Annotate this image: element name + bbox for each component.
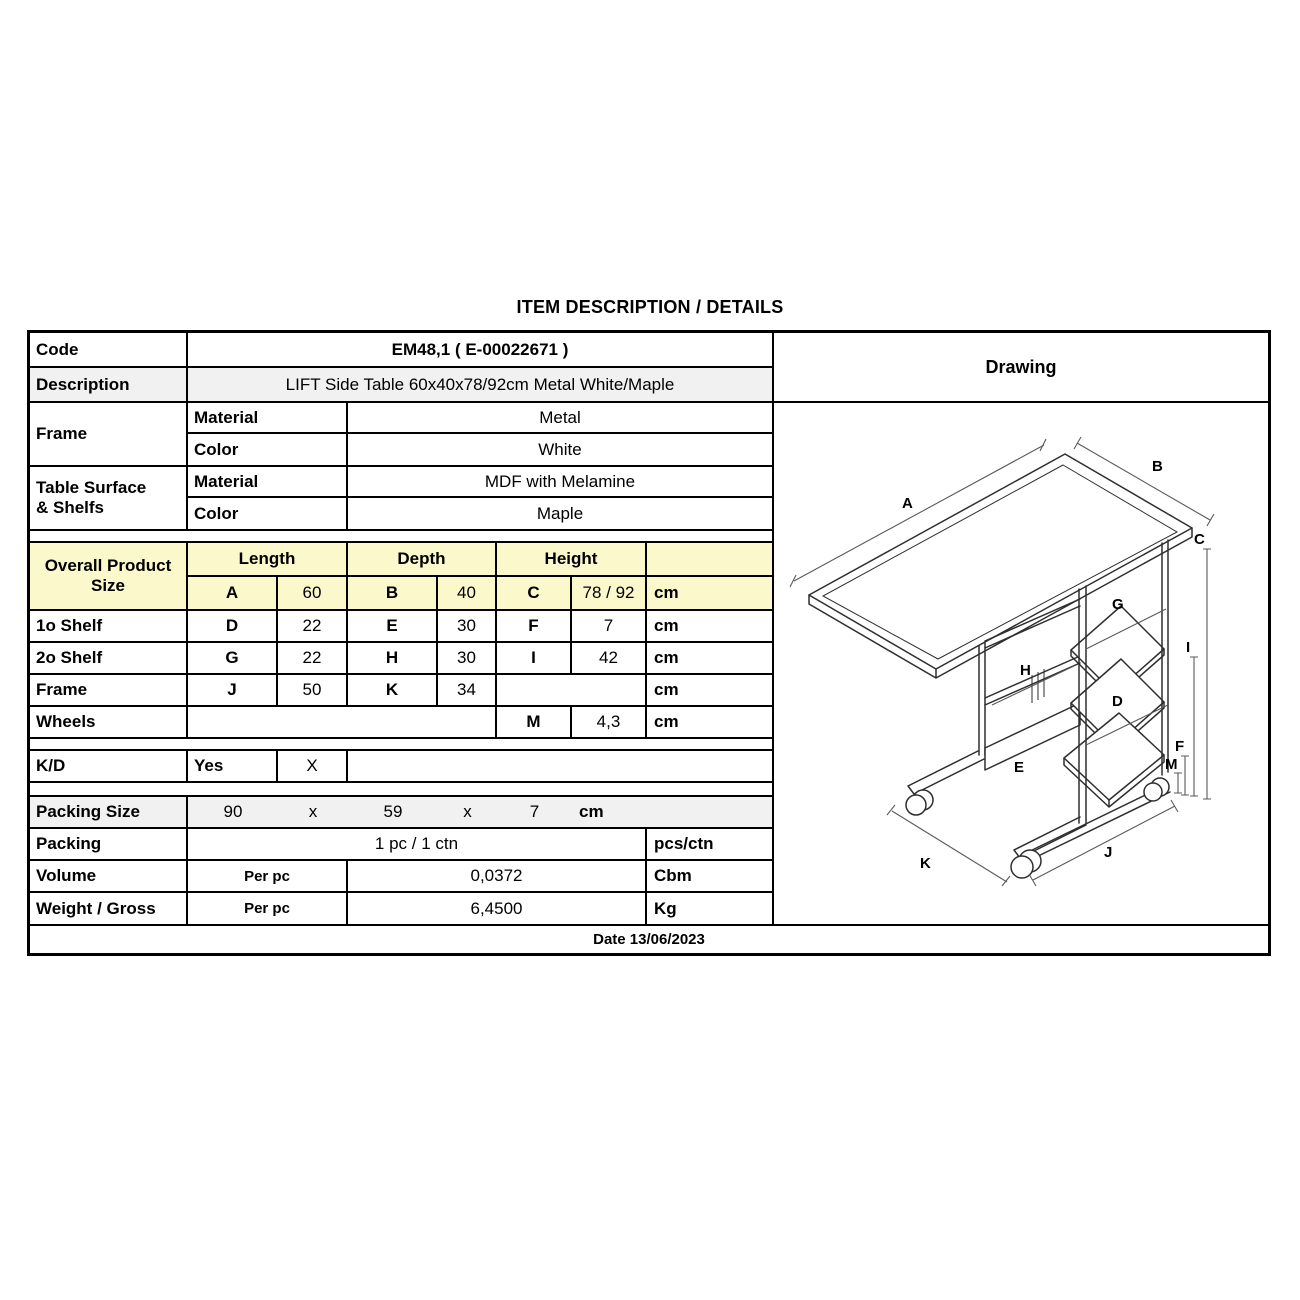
- dim-line-M: [1174, 773, 1182, 793]
- dim-line-H: [992, 666, 1074, 705]
- dim-line-I: [1190, 657, 1198, 796]
- packing-size-empty: [647, 797, 772, 827]
- packing-size-label: Packing Size: [30, 797, 188, 827]
- frame-depth-key: K: [348, 675, 438, 705]
- weight-row: Weight / Gross Per pc 6,4500 Kg: [30, 893, 772, 924]
- dim-label-C: C: [1194, 531, 1205, 548]
- packing-size-x1: x: [278, 797, 348, 827]
- packing-label: Packing: [30, 829, 188, 859]
- right-caster: [1144, 783, 1162, 801]
- volume-label: Volume: [30, 861, 188, 891]
- shelf1-unit: cm: [647, 611, 772, 641]
- shelf2-row: 2o Shelf G 22 H 30 I 42 cm: [30, 643, 772, 675]
- description-row: Description LIFT Side Table 60x40x78/92c…: [30, 368, 772, 403]
- code-row: Code EM48,1 ( E-00022671 ): [30, 333, 772, 368]
- spec-table: Code EM48,1 ( E-00022671 ) Description L…: [27, 330, 1271, 956]
- overall-length-value: 60: [278, 577, 348, 609]
- frame-length-key: J: [188, 675, 278, 705]
- shelf1-height-key: F: [497, 611, 572, 641]
- packing-row: Packing 1 pc / 1 ctn pcs/ctn: [30, 829, 772, 861]
- wheels-empty-cell: [188, 707, 497, 737]
- volume-unit: Cbm: [647, 861, 772, 891]
- surface-material-label: Material: [188, 467, 348, 496]
- spec-table-left: Code EM48,1 ( E-00022671 ) Description L…: [30, 333, 772, 924]
- frame-section: Frame Material Metal Color White: [30, 403, 772, 467]
- surface-label-line1: Table Surface: [36, 478, 146, 498]
- date-value: Date 13/06/2023: [593, 931, 705, 948]
- size-section: Overall Product Size Length Depth Height…: [30, 543, 772, 611]
- overall-depth-value: 40: [438, 577, 497, 609]
- shelf1-row: 1o Shelf D 22 E 30 F 7 cm: [30, 611, 772, 643]
- volume-per-pc: Per pc: [188, 861, 348, 891]
- spacer-row: [30, 739, 772, 751]
- dim-label-K: K: [920, 855, 931, 872]
- kd-label: K/D: [30, 751, 188, 781]
- date-row: Date 13/06/2023: [30, 926, 1268, 953]
- spacer-row: [30, 783, 772, 797]
- surface-color-value: Maple: [348, 498, 772, 529]
- shelf2-length-key: G: [188, 643, 278, 673]
- weight-label: Weight / Gross: [30, 893, 188, 924]
- weight-value: 6,4500: [348, 893, 647, 924]
- wheels-unit: cm: [647, 707, 772, 737]
- overall-depth-key: B: [348, 577, 438, 609]
- packing-unit: pcs/ctn: [647, 829, 772, 859]
- packing-size-x2: x: [438, 797, 497, 827]
- packing-value: 1 pc / 1 ctn: [188, 829, 647, 859]
- frame-material-value: Metal: [348, 403, 772, 432]
- dim-label-A: A: [902, 495, 913, 512]
- product-drawing: A B C I F M G H D E K J: [774, 403, 1268, 918]
- dim-label-D: D: [1112, 693, 1123, 710]
- shelf1-depth-key: E: [348, 611, 438, 641]
- dim-label-H: H: [1020, 662, 1031, 679]
- surface-color-label: Color: [188, 498, 348, 529]
- height-header: Height: [497, 543, 647, 575]
- size-header-unit-cell: [647, 543, 772, 575]
- kd-row: K/D Yes X: [30, 751, 772, 783]
- code-label: Code: [30, 333, 188, 366]
- wheels-height-value: 4,3: [572, 707, 647, 737]
- left-leg: [908, 751, 984, 794]
- frame-material-label: Material: [188, 403, 348, 432]
- drawing-header: Drawing: [774, 333, 1268, 403]
- dim-label-E: E: [1014, 759, 1024, 776]
- frame-color-label: Color: [188, 434, 348, 465]
- shelf1-height-value: 7: [572, 611, 647, 641]
- volume-row: Volume Per pc 0,0372 Cbm: [30, 861, 772, 893]
- shelf1-length-key: D: [188, 611, 278, 641]
- shelf2-label: 2o Shelf: [30, 643, 188, 673]
- kd-empty-cell: [348, 751, 772, 781]
- frame-length-value: 50: [278, 675, 348, 705]
- frame-section-label: Frame: [30, 403, 188, 465]
- dim-label-M: M: [1165, 756, 1178, 773]
- shelf1-length-value: 22: [278, 611, 348, 641]
- dim-label-B: B: [1152, 458, 1163, 475]
- weight-per-pc: Per pc: [188, 893, 348, 924]
- packing-size-unit: cm: [572, 797, 647, 827]
- dim-label-J: J: [1104, 844, 1112, 861]
- description-value: LIFT Side Table 60x40x78/92cm Metal Whit…: [188, 368, 772, 401]
- spacer-row: [30, 531, 772, 543]
- description-label: Description: [30, 368, 188, 401]
- dim-label-G: G: [1112, 596, 1124, 613]
- size-label-line1: Overall Product: [45, 556, 172, 576]
- drawing-area: A B C I F M G H D E K J: [774, 403, 1268, 918]
- frame-color-value: White: [348, 434, 772, 465]
- surface-section-label: Table Surface & Shelfs: [30, 467, 188, 529]
- left-caster: [906, 795, 926, 815]
- wheels-label: Wheels: [30, 707, 188, 737]
- wheels-row: Wheels M 4,3 cm: [30, 707, 772, 739]
- packing-size-height: 7: [497, 797, 572, 827]
- volume-value: 0,0372: [348, 861, 647, 891]
- dim-line-C: [1203, 549, 1211, 799]
- dim-line-K: [887, 805, 1010, 886]
- surface-label-line2: & Shelfs: [36, 498, 104, 518]
- shelf1-label: 1o Shelf: [30, 611, 188, 641]
- shelf2-height-value: 42: [572, 643, 647, 673]
- overall-unit: cm: [647, 577, 772, 609]
- right-post: [1162, 540, 1168, 775]
- frame-unit: cm: [647, 675, 772, 705]
- depth-header: Depth: [348, 543, 497, 575]
- shelf2-height-key: I: [497, 643, 572, 673]
- length-header: Length: [188, 543, 348, 575]
- shelf2-length-value: 22: [278, 643, 348, 673]
- frame-height-empty-cell: [497, 675, 647, 705]
- page-title: ITEM DESCRIPTION / DETAILS: [0, 297, 1300, 318]
- frame-size-label: Frame: [30, 675, 188, 705]
- dim-label-I: I: [1186, 639, 1190, 656]
- overall-height-key: C: [497, 577, 572, 609]
- dim-label-F: F: [1175, 738, 1184, 755]
- size-label-line2: Size: [91, 576, 125, 596]
- left-post: [979, 643, 985, 755]
- shelf2-unit: cm: [647, 643, 772, 673]
- surface-section: Table Surface & Shelfs Material MDF with…: [30, 467, 772, 531]
- lift-lock-detail: [1032, 669, 1044, 703]
- surface-material-value: MDF with Melamine: [348, 467, 772, 496]
- frame-size-row: Frame J 50 K 34 cm: [30, 675, 772, 707]
- overall-length-key: A: [188, 577, 278, 609]
- weight-unit: Kg: [647, 893, 772, 924]
- packing-size-row: Packing Size 90 x 59 x 7 cm: [30, 797, 772, 829]
- dim-line-F: [1181, 756, 1189, 795]
- overall-height-value: 78 / 92: [572, 577, 647, 609]
- frame-depth-value: 34: [438, 675, 497, 705]
- wheels-height-key: M: [497, 707, 572, 737]
- packing-size-length: 90: [188, 797, 278, 827]
- drawing-panel: Drawing: [772, 333, 1268, 924]
- kd-value: Yes: [188, 751, 278, 781]
- shelf2-depth-key: H: [348, 643, 438, 673]
- kd-mark: X: [278, 751, 348, 781]
- shelf1-depth-value: 30: [438, 611, 497, 641]
- shelf2-depth-value: 30: [438, 643, 497, 673]
- code-value: EM48,1 ( E-00022671 ): [188, 333, 772, 366]
- size-section-label: Overall Product Size: [30, 543, 188, 609]
- packing-size-width: 59: [348, 797, 438, 827]
